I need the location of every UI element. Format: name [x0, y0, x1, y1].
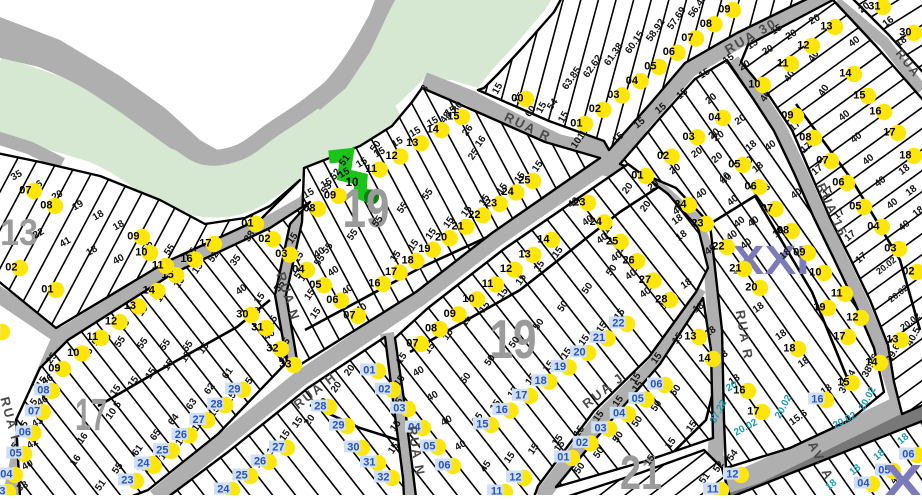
svg-text:10: 10	[748, 79, 760, 91]
svg-text:11: 11	[777, 58, 789, 70]
svg-text:17: 17	[833, 331, 845, 343]
svg-text:32: 32	[266, 343, 278, 355]
svg-text:12: 12	[386, 150, 398, 162]
svg-text:13: 13	[684, 331, 696, 343]
svg-text:24: 24	[217, 484, 230, 496]
svg-text:09: 09	[127, 231, 139, 243]
svg-text:06: 06	[650, 379, 662, 391]
svg-text:12: 12	[509, 472, 521, 484]
svg-text:02: 02	[902, 266, 914, 278]
svg-text:03: 03	[393, 403, 405, 415]
svg-text:08: 08	[777, 225, 789, 237]
svg-text:22: 22	[468, 209, 480, 221]
svg-text:11: 11	[87, 331, 99, 343]
svg-text:01: 01	[41, 284, 53, 296]
svg-text:04: 04	[292, 264, 305, 276]
svg-text:11: 11	[831, 288, 843, 300]
svg-text:29: 29	[332, 420, 344, 432]
svg-text:24: 24	[502, 186, 515, 198]
svg-text:19: 19	[813, 302, 825, 314]
svg-text:25: 25	[236, 470, 248, 482]
svg-text:03: 03	[594, 422, 606, 434]
svg-text:05: 05	[849, 201, 861, 213]
svg-text:06: 06	[438, 460, 450, 472]
svg-text:21: 21	[729, 263, 741, 275]
svg-text:28: 28	[210, 399, 222, 411]
svg-text:11: 11	[366, 163, 378, 175]
svg-text:33: 33	[279, 359, 291, 371]
svg-text:23: 23	[121, 475, 133, 487]
svg-text:12: 12	[500, 263, 512, 275]
svg-text:26: 26	[622, 255, 634, 267]
svg-text:04: 04	[613, 408, 626, 420]
svg-text:10: 10	[809, 267, 821, 279]
svg-text:10: 10	[462, 293, 474, 305]
svg-text:19: 19	[418, 243, 430, 255]
svg-text:06: 06	[832, 177, 844, 189]
svg-text:09: 09	[444, 308, 456, 320]
svg-text:08: 08	[425, 323, 437, 335]
svg-text:12: 12	[105, 316, 117, 328]
svg-text:09: 09	[793, 247, 805, 259]
svg-text:13: 13	[886, 334, 898, 346]
svg-text:17: 17	[199, 238, 211, 250]
svg-text:04: 04	[708, 112, 721, 124]
svg-text:11: 11	[482, 278, 494, 290]
svg-text:12: 12	[797, 40, 809, 52]
svg-text:24: 24	[674, 199, 687, 211]
svg-text:02: 02	[378, 384, 390, 396]
svg-text:22: 22	[612, 318, 624, 330]
svg-text:04: 04	[626, 75, 639, 87]
svg-text:13: 13	[124, 300, 136, 312]
svg-text:08: 08	[40, 200, 52, 212]
svg-text:03: 03	[0, 486, 6, 496]
svg-text:03: 03	[607, 89, 619, 101]
svg-text:08: 08	[799, 132, 811, 144]
svg-text:21: 21	[620, 447, 662, 495]
svg-text:02: 02	[576, 437, 588, 449]
svg-text:32: 32	[377, 472, 389, 484]
svg-text:30: 30	[899, 27, 911, 39]
svg-text:14: 14	[537, 234, 550, 246]
svg-text:05: 05	[309, 279, 321, 291]
svg-text:26: 26	[254, 456, 266, 468]
svg-text:23: 23	[691, 218, 703, 230]
svg-text:28: 28	[314, 401, 326, 413]
svg-text:04: 04	[857, 478, 870, 490]
svg-text:05: 05	[423, 441, 435, 453]
svg-text:15: 15	[476, 419, 488, 431]
svg-text:07: 07	[816, 155, 828, 167]
svg-text:X: X	[883, 455, 922, 495]
svg-text:04: 04	[867, 221, 880, 233]
svg-text:27: 27	[272, 442, 284, 454]
svg-text:15: 15	[837, 377, 849, 389]
svg-text:06: 06	[663, 46, 675, 58]
svg-text:03: 03	[275, 248, 287, 260]
svg-text:30: 30	[347, 442, 359, 454]
svg-text:17: 17	[515, 390, 527, 402]
svg-text:06: 06	[745, 181, 757, 193]
svg-text:15: 15	[447, 111, 459, 123]
svg-text:20: 20	[435, 232, 447, 244]
svg-text:01: 01	[570, 118, 582, 130]
svg-text:16: 16	[869, 106, 881, 118]
svg-text:27: 27	[193, 414, 205, 426]
svg-text:10: 10	[67, 347, 79, 359]
svg-text:09: 09	[324, 189, 336, 201]
svg-text:16: 16	[368, 278, 380, 290]
svg-text:02: 02	[589, 103, 601, 115]
svg-text:14: 14	[698, 353, 711, 365]
svg-text:02: 02	[5, 262, 17, 274]
svg-text:01: 01	[557, 452, 569, 464]
svg-text:17: 17	[883, 127, 895, 139]
svg-text:01: 01	[363, 365, 375, 377]
svg-text:28: 28	[655, 294, 667, 306]
svg-text:18: 18	[783, 343, 795, 355]
svg-text:07: 07	[681, 32, 693, 44]
svg-text:07: 07	[406, 338, 418, 350]
svg-text:19: 19	[554, 361, 566, 373]
svg-text:31: 31	[251, 322, 263, 334]
svg-text:18: 18	[402, 255, 414, 267]
svg-text:30: 30	[236, 309, 248, 321]
svg-text:22: 22	[712, 241, 724, 253]
svg-text:09: 09	[718, 4, 730, 16]
svg-text:31: 31	[868, 1, 880, 13]
svg-text:02: 02	[258, 233, 270, 245]
svg-text:08: 08	[700, 18, 712, 30]
svg-text:23: 23	[485, 197, 497, 209]
svg-text:07: 07	[761, 203, 773, 215]
svg-text:15: 15	[853, 90, 865, 102]
svg-text:08: 08	[303, 203, 315, 215]
svg-text:03: 03	[683, 131, 695, 143]
svg-text:09: 09	[48, 363, 60, 375]
svg-text:27: 27	[639, 274, 651, 286]
svg-text:07: 07	[343, 310, 355, 322]
svg-text:03: 03	[884, 243, 896, 255]
svg-text:11: 11	[152, 260, 164, 272]
svg-text:06: 06	[326, 294, 338, 306]
svg-text:13: 13	[820, 21, 832, 33]
svg-text:14: 14	[143, 284, 156, 296]
svg-text:25: 25	[606, 235, 618, 247]
svg-text:23: 23	[573, 197, 585, 209]
svg-text:21: 21	[452, 220, 464, 232]
svg-text:16: 16	[496, 404, 508, 416]
svg-text:16: 16	[180, 253, 192, 265]
svg-text:01: 01	[241, 218, 253, 230]
svg-text:20: 20	[573, 346, 585, 358]
svg-text:01: 01	[631, 170, 643, 182]
svg-text:14: 14	[839, 68, 852, 80]
svg-text:24: 24	[590, 216, 603, 228]
svg-text:12: 12	[726, 469, 738, 481]
svg-text:24: 24	[137, 458, 150, 470]
svg-text:20: 20	[745, 282, 757, 294]
svg-text:18: 18	[899, 150, 911, 162]
svg-text:25: 25	[156, 445, 168, 457]
svg-text:07: 07	[28, 406, 40, 418]
svg-text:07: 07	[19, 185, 31, 197]
svg-text:31: 31	[363, 457, 375, 469]
svg-text:05: 05	[10, 448, 22, 460]
svg-text:14: 14	[427, 124, 440, 136]
svg-text:10: 10	[135, 247, 147, 259]
svg-text:21: 21	[593, 332, 605, 344]
svg-text:05: 05	[632, 393, 644, 405]
svg-text:11: 11	[707, 484, 719, 496]
svg-text:14: 14	[865, 357, 878, 369]
svg-text:16: 16	[733, 385, 745, 397]
svg-text:05: 05	[728, 159, 740, 171]
svg-text:26: 26	[175, 429, 187, 441]
svg-text:25: 25	[518, 175, 530, 187]
svg-text:12: 12	[846, 312, 858, 324]
svg-text:16: 16	[811, 394, 823, 406]
svg-text:02: 02	[657, 150, 669, 162]
svg-text:17: 17	[747, 406, 759, 418]
svg-text:17: 17	[385, 266, 397, 278]
svg-text:04: 04	[0, 469, 13, 481]
svg-text:18: 18	[535, 375, 547, 387]
svg-text:13: 13	[406, 137, 418, 149]
svg-text:13: 13	[519, 248, 531, 260]
svg-text:05: 05	[644, 61, 656, 73]
svg-text:00: 00	[511, 93, 523, 105]
svg-text:29: 29	[228, 384, 240, 396]
svg-text:08: 08	[37, 385, 49, 397]
svg-text:11: 11	[491, 486, 503, 496]
svg-text:09: 09	[781, 110, 793, 122]
